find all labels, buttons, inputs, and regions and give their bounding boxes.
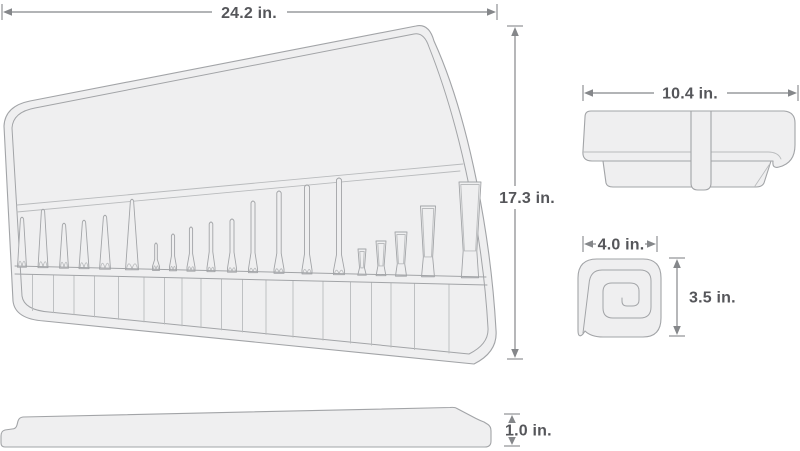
rolled-strap	[691, 111, 711, 190]
arrow-left	[3, 8, 12, 16]
side-profile-outline	[1, 407, 491, 447]
diagram-canvas: 24.2 in. 17.3 in. 10.4 in. 4.0 in.	[0, 0, 800, 451]
dim-label-side-thickness: 1.0 in.	[505, 423, 552, 440]
rolled-band	[583, 111, 795, 167]
side-profile-view	[1, 407, 491, 447]
spiral-outer	[578, 259, 661, 337]
unrolled-pouch-view	[4, 26, 496, 364]
rolled-end-view	[578, 259, 661, 337]
dim-label-end-width: 4.0 in.	[598, 237, 645, 254]
arrow-down	[673, 326, 681, 335]
cold-chisel	[459, 182, 481, 278]
pouch-outer-outline	[4, 26, 496, 364]
cold-chisel	[376, 241, 386, 276]
dimension-main-width: 24.2 in.	[2, 4, 497, 22]
dimension-main-height: 17.3 in.	[499, 26, 555, 359]
rolled-front-view	[583, 111, 795, 190]
arrow-up	[673, 259, 681, 268]
cold-chisel	[358, 249, 367, 275]
arrow-down	[511, 349, 519, 358]
dim-label-end-height: 3.5 in.	[689, 290, 736, 307]
rolled-tub	[603, 161, 771, 187]
arrow-up	[511, 27, 519, 36]
arrow-right	[487, 8, 496, 16]
arrow-left	[584, 240, 593, 248]
dimension-end-height: 3.5 in.	[669, 258, 736, 336]
dimension-end-width: 4.0 in.	[583, 236, 657, 254]
arrow-right	[788, 89, 797, 97]
arrow-left	[584, 89, 593, 97]
arrow-right	[647, 240, 656, 248]
diagram-svg: 24.2 in. 17.3 in. 10.4 in. 4.0 in.	[0, 0, 800, 451]
dimension-rolled-width: 10.4 in.	[583, 85, 798, 103]
dim-label-main-width: 24.2 in.	[221, 5, 277, 22]
dim-label-main-height: 17.3 in.	[499, 190, 555, 207]
dim-label-rolled-width: 10.4 in.	[662, 86, 718, 103]
dimension-side-thickness: 1.0 in.	[504, 414, 552, 446]
